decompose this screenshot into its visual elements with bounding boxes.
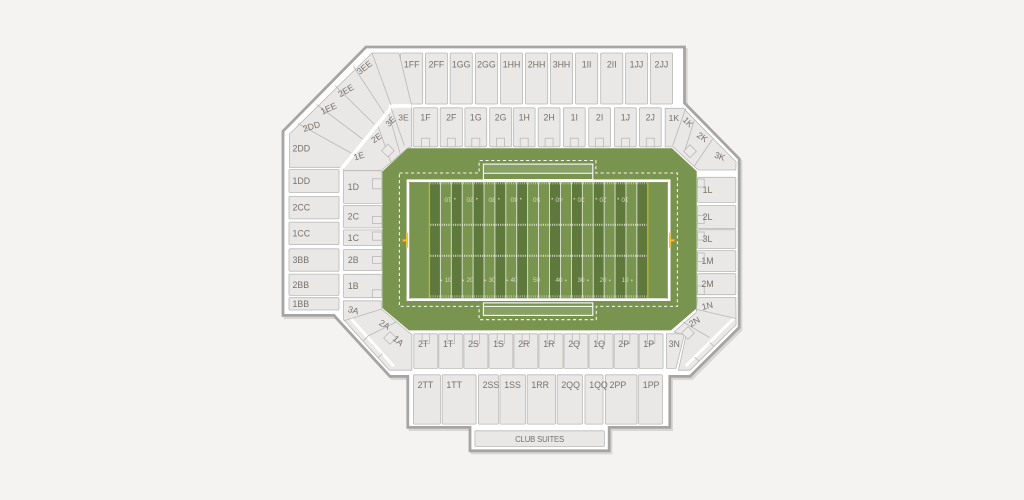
- svg-text:2JJ: 2JJ: [655, 60, 669, 70]
- svg-text:3BB: 3BB: [293, 255, 310, 265]
- svg-text:2TT: 2TT: [418, 380, 434, 390]
- svg-text:1K: 1K: [669, 113, 680, 123]
- svg-text:1F: 1F: [420, 113, 431, 123]
- svg-text:1S: 1S: [493, 339, 504, 349]
- svg-text:10: 10: [444, 196, 452, 203]
- svg-text:2BB: 2BB: [293, 280, 310, 290]
- svg-text:20: 20: [599, 196, 607, 203]
- svg-text:2QQ: 2QQ: [561, 380, 580, 390]
- svg-text:1D: 1D: [348, 182, 359, 192]
- svg-text:2HH: 2HH: [528, 60, 546, 70]
- svg-text:20: 20: [466, 277, 474, 284]
- svg-text:2I: 2I: [596, 113, 603, 123]
- svg-text:1C: 1C: [348, 233, 360, 243]
- svg-text:2Q: 2Q: [568, 339, 580, 349]
- svg-text:1JJ: 1JJ: [630, 60, 644, 70]
- svg-text:2G: 2G: [495, 113, 507, 123]
- svg-text:2M: 2M: [701, 279, 713, 289]
- svg-text:1CC: 1CC: [293, 228, 311, 238]
- svg-text:1SS: 1SS: [504, 380, 521, 390]
- svg-text:2SS: 2SS: [483, 380, 500, 390]
- svg-text:2T: 2T: [418, 339, 429, 349]
- svg-text:3L: 3L: [703, 234, 713, 244]
- svg-text:CLUB SUITES: CLUB SUITES: [515, 435, 564, 444]
- svg-text:50: 50: [533, 196, 541, 203]
- svg-text:3N: 3N: [669, 339, 680, 349]
- svg-text:2C: 2C: [348, 212, 360, 222]
- svg-text:1M: 1M: [701, 256, 713, 266]
- svg-text:1FF: 1FF: [404, 60, 420, 70]
- svg-text:1I: 1I: [571, 113, 578, 123]
- svg-text:1R: 1R: [543, 339, 554, 349]
- svg-text:2H: 2H: [543, 113, 554, 123]
- svg-text:40: 40: [510, 196, 518, 203]
- svg-text:2R: 2R: [518, 339, 529, 349]
- svg-text:20: 20: [466, 196, 474, 203]
- svg-text:30: 30: [488, 196, 496, 203]
- svg-text:2L: 2L: [703, 212, 713, 222]
- svg-text:1PP: 1PP: [643, 380, 660, 390]
- svg-text:1T: 1T: [443, 339, 454, 349]
- svg-text:1G: 1G: [470, 113, 482, 123]
- svg-text:1II: 1II: [582, 60, 592, 70]
- svg-text:2GG: 2GG: [477, 60, 496, 70]
- svg-text:1TT: 1TT: [446, 380, 462, 390]
- svg-text:30: 30: [488, 277, 496, 284]
- svg-text:10: 10: [621, 196, 629, 203]
- svg-text:2J: 2J: [646, 113, 655, 123]
- svg-text:2F: 2F: [446, 113, 457, 123]
- svg-text:10: 10: [444, 277, 452, 284]
- svg-text:2II: 2II: [607, 60, 617, 70]
- svg-text:3HH: 3HH: [553, 60, 571, 70]
- svg-text:50: 50: [533, 277, 541, 284]
- svg-text:40: 40: [555, 196, 563, 203]
- svg-text:10: 10: [621, 277, 629, 284]
- svg-text:2P: 2P: [618, 339, 629, 349]
- svg-text:2PP: 2PP: [610, 380, 627, 390]
- svg-text:2FF: 2FF: [429, 60, 445, 70]
- svg-text:1QQ: 1QQ: [589, 380, 608, 390]
- svg-text:2B: 2B: [348, 255, 359, 265]
- svg-text:30: 30: [577, 196, 585, 203]
- svg-text:1HH: 1HH: [503, 60, 521, 70]
- svg-text:1H: 1H: [519, 113, 530, 123]
- svg-text:2DD: 2DD: [293, 144, 311, 154]
- svg-text:40: 40: [555, 277, 563, 284]
- svg-text:1B: 1B: [348, 281, 359, 291]
- svg-text:1RR: 1RR: [531, 380, 549, 390]
- svg-text:1Q: 1Q: [593, 339, 605, 349]
- svg-text:30: 30: [577, 277, 585, 284]
- svg-text:40: 40: [510, 277, 518, 284]
- svg-text:20: 20: [599, 277, 607, 284]
- svg-text:1L: 1L: [703, 185, 713, 195]
- svg-text:1P: 1P: [643, 339, 654, 349]
- svg-text:3E: 3E: [398, 113, 409, 123]
- svg-text:2S: 2S: [468, 339, 479, 349]
- svg-text:1J: 1J: [621, 113, 630, 123]
- svg-text:1DD: 1DD: [293, 176, 311, 186]
- svg-text:2CC: 2CC: [293, 203, 311, 213]
- svg-text:1BB: 1BB: [293, 299, 310, 309]
- svg-text:1GG: 1GG: [452, 60, 471, 70]
